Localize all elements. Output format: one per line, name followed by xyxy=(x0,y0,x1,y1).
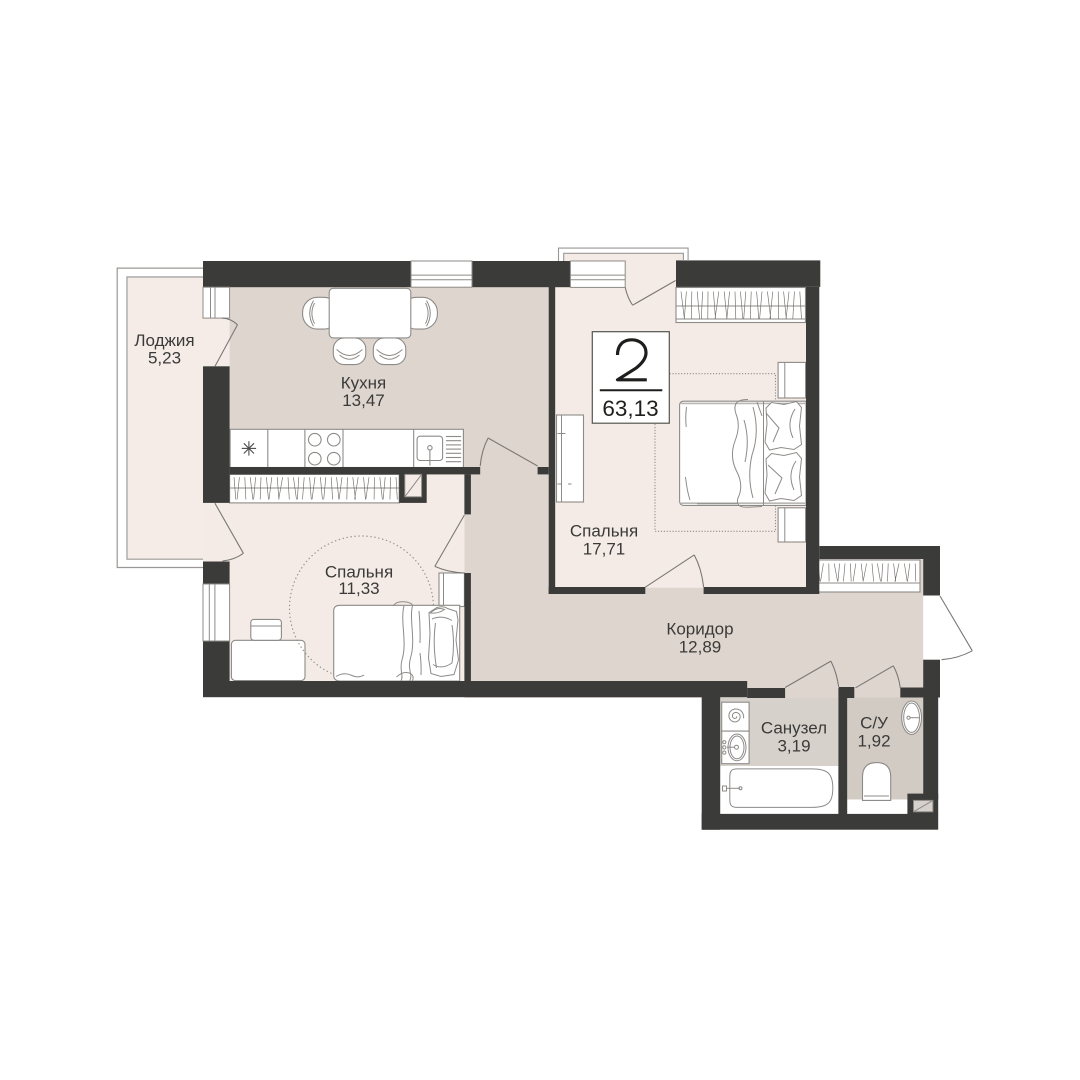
svg-text:Кухня: Кухня xyxy=(341,374,387,393)
svg-text:3,19: 3,19 xyxy=(777,737,810,756)
svg-text:5,23: 5,23 xyxy=(148,349,181,368)
svg-text:12,89: 12,89 xyxy=(679,638,722,657)
svg-text:Санузел: Санузел xyxy=(761,719,827,738)
svg-text:13,47: 13,47 xyxy=(342,391,385,410)
svg-text:Лоджия: Лоджия xyxy=(134,331,194,350)
svg-text:1,92: 1,92 xyxy=(857,732,890,751)
svg-text:С/У: С/У xyxy=(860,714,888,733)
svg-text:11,33: 11,33 xyxy=(338,579,379,598)
svg-text:Коридор: Коридор xyxy=(666,620,733,639)
svg-text:63,13: 63,13 xyxy=(602,396,658,421)
svg-text:Спальня: Спальня xyxy=(570,522,638,541)
svg-text:17,71: 17,71 xyxy=(583,540,626,559)
